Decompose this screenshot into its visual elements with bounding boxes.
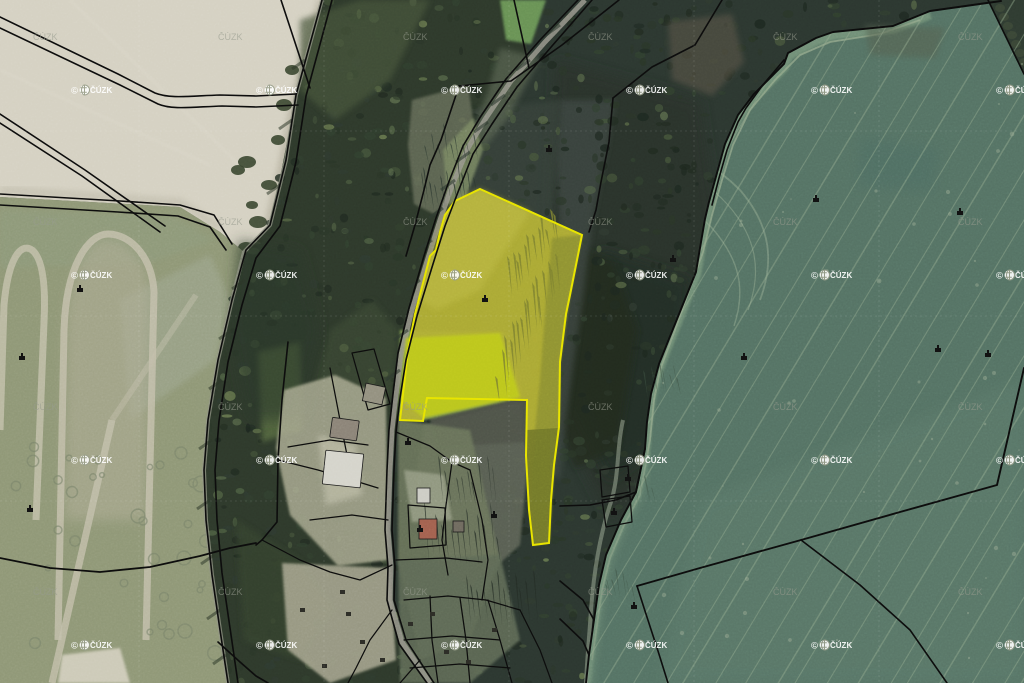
svg-text:ČÚZK: ČÚZK — [645, 456, 667, 465]
svg-text:ČÚZK: ČÚZK — [33, 217, 58, 227]
svg-text:©: © — [71, 456, 78, 467]
svg-text:ČÚZK: ČÚZK — [403, 587, 428, 597]
svg-text:©: © — [811, 456, 818, 467]
svg-text:ČÚZK: ČÚZK — [218, 32, 243, 42]
svg-text:©: © — [441, 86, 448, 97]
svg-text:ČÚZK: ČÚZK — [33, 587, 58, 597]
svg-text:©: © — [441, 271, 448, 282]
svg-text:©: © — [441, 641, 448, 652]
svg-text:©: © — [626, 86, 633, 97]
svg-text:ČÚZK: ČÚZK — [403, 402, 428, 412]
svg-text:ČÚZK: ČÚZK — [645, 641, 667, 650]
svg-text:ČÚZK: ČÚZK — [90, 456, 112, 465]
svg-text:©: © — [441, 456, 448, 467]
svg-text:©: © — [71, 271, 78, 282]
svg-text:ČÚZK: ČÚZK — [275, 271, 297, 280]
svg-text:ČÚZK: ČÚZK — [1015, 271, 1024, 280]
svg-text:©: © — [626, 271, 633, 282]
svg-text:ČÚZK: ČÚZK — [218, 217, 243, 227]
svg-text:ČÚZK: ČÚZK — [90, 271, 112, 280]
svg-text:ČÚZK: ČÚZK — [958, 217, 983, 227]
svg-text:ČÚZK: ČÚZK — [830, 456, 852, 465]
svg-text:ČÚZK: ČÚZK — [33, 32, 58, 42]
svg-text:©: © — [256, 86, 263, 97]
svg-text:©: © — [996, 271, 1003, 282]
svg-text:©: © — [71, 641, 78, 652]
svg-text:©: © — [71, 86, 78, 97]
svg-text:©: © — [996, 86, 1003, 97]
svg-text:ČÚZK: ČÚZK — [218, 402, 243, 412]
svg-text:ČÚZK: ČÚZK — [588, 32, 613, 42]
svg-text:ČÚZK: ČÚZK — [460, 86, 482, 95]
svg-text:©: © — [626, 456, 633, 467]
svg-text:©: © — [811, 86, 818, 97]
svg-text:ČÚZK: ČÚZK — [218, 587, 243, 597]
svg-text:ČÚZK: ČÚZK — [588, 217, 613, 227]
svg-text:ČÚZK: ČÚZK — [958, 402, 983, 412]
svg-text:ČÚZK: ČÚZK — [958, 32, 983, 42]
svg-text:ČÚZK: ČÚZK — [645, 86, 667, 95]
svg-text:ČÚZK: ČÚZK — [773, 32, 798, 42]
svg-text:ČÚZK: ČÚZK — [403, 217, 428, 227]
svg-text:ČÚZK: ČÚZK — [90, 86, 112, 95]
svg-text:ČÚZK: ČÚZK — [773, 217, 798, 227]
svg-text:©: © — [811, 271, 818, 282]
svg-text:ČÚZK: ČÚZK — [773, 587, 798, 597]
svg-text:ČÚZK: ČÚZK — [90, 641, 112, 650]
svg-text:ČÚZK: ČÚZK — [645, 271, 667, 280]
svg-text:©: © — [811, 641, 818, 652]
svg-text:ČÚZK: ČÚZK — [830, 271, 852, 280]
svg-text:ČÚZK: ČÚZK — [1015, 641, 1024, 650]
svg-text:ČÚZK: ČÚZK — [275, 86, 297, 95]
svg-text:ČÚZK: ČÚZK — [830, 86, 852, 95]
svg-text:ČÚZK: ČÚZK — [588, 402, 613, 412]
svg-text:ČÚZK: ČÚZK — [773, 402, 798, 412]
svg-text:ČÚZK: ČÚZK — [1015, 456, 1024, 465]
svg-text:ČÚZK: ČÚZK — [275, 456, 297, 465]
svg-text:©: © — [256, 271, 263, 282]
svg-text:ČÚZK: ČÚZK — [275, 641, 297, 650]
svg-text:©: © — [256, 641, 263, 652]
svg-text:ČÚZK: ČÚZK — [460, 271, 482, 280]
svg-text:©: © — [996, 456, 1003, 467]
svg-text:ČÚZK: ČÚZK — [460, 641, 482, 650]
svg-text:©: © — [626, 641, 633, 652]
svg-text:ČÚZK: ČÚZK — [830, 641, 852, 650]
svg-text:ČÚZK: ČÚZK — [588, 587, 613, 597]
svg-text:ČÚZK: ČÚZK — [958, 587, 983, 597]
svg-text:ČÚZK: ČÚZK — [460, 456, 482, 465]
svg-text:ČÚZK: ČÚZK — [33, 402, 58, 412]
svg-text:ČÚZK: ČÚZK — [1015, 86, 1024, 95]
svg-text:ČÚZK: ČÚZK — [403, 32, 428, 42]
svg-text:©: © — [256, 456, 263, 467]
svg-text:©: © — [996, 641, 1003, 652]
